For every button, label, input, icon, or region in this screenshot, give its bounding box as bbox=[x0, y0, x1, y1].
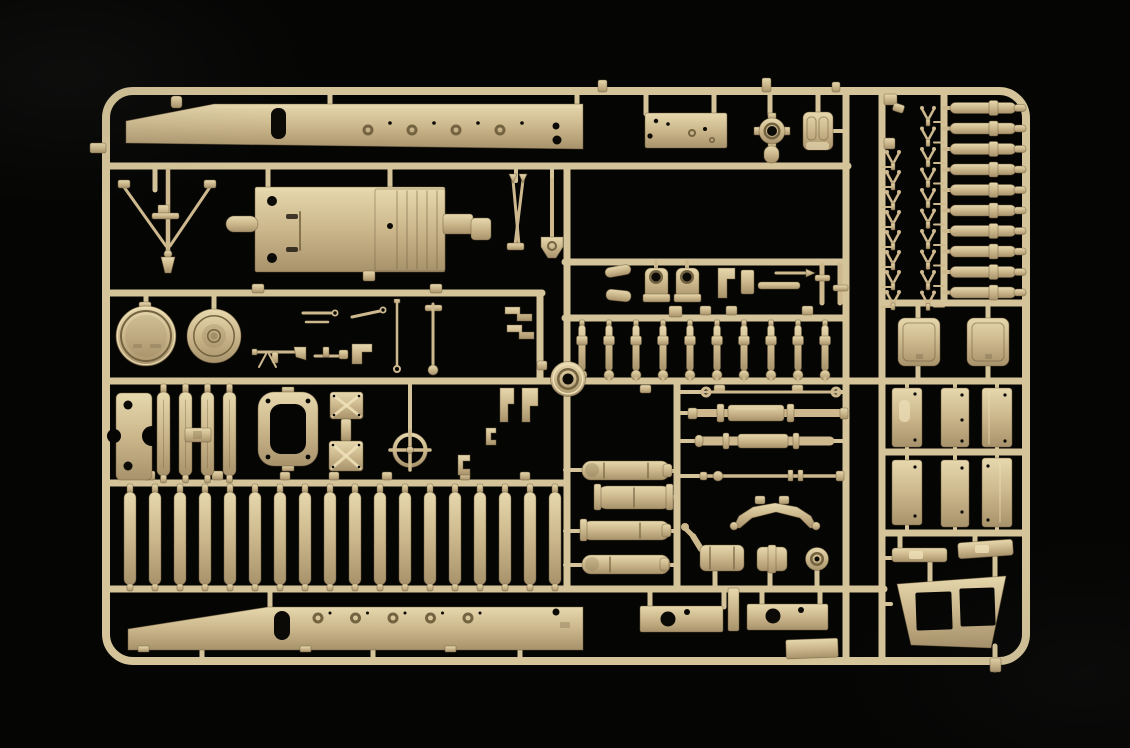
part-muffler bbox=[700, 545, 744, 571]
part-shock-column-item bbox=[944, 203, 1026, 218]
part-y-column-1 bbox=[887, 193, 893, 204]
part-spring-strips-item bbox=[157, 384, 170, 483]
part-chassis-rail-top bbox=[126, 104, 583, 149]
part-panel-rect-1 bbox=[913, 438, 916, 441]
part-leaf-spring-body bbox=[730, 496, 820, 530]
part-axle-2 bbox=[723, 433, 729, 449]
part-tank-cyl-3-body bbox=[580, 519, 671, 541]
part-panel-rect-1 bbox=[899, 400, 910, 422]
sprue-tabs bbox=[252, 284, 264, 293]
part-leaf-spring bbox=[730, 496, 820, 530]
part-hatch-1 bbox=[358, 395, 361, 398]
part-chassis-rail-bottom bbox=[138, 646, 149, 652]
sprue-tabs bbox=[892, 102, 905, 113]
part-slat-row bbox=[202, 584, 208, 591]
part-slat-row bbox=[127, 584, 133, 591]
part-ram-rods bbox=[507, 174, 527, 250]
part-plate-hole-2 bbox=[798, 607, 804, 613]
part-y-column-1 bbox=[893, 233, 899, 244]
part-end-cap-body bbox=[806, 548, 829, 571]
part-panel-rect-6 bbox=[982, 458, 1012, 527]
part-chassis-rail-bottom bbox=[560, 622, 570, 628]
part-cleaning-rod bbox=[394, 299, 400, 372]
part-tow-frame-v bbox=[152, 213, 179, 219]
part-y-column-2 bbox=[928, 232, 934, 243]
part-axle-2 bbox=[738, 434, 788, 448]
part-slat-row-item bbox=[524, 484, 536, 591]
part-panel-rect-3 bbox=[1003, 393, 1006, 396]
part-slat-row-item bbox=[499, 484, 511, 591]
part-panel-rect-2 bbox=[960, 439, 963, 442]
part-shock-column bbox=[989, 203, 998, 218]
part-strip-plate-2 bbox=[958, 539, 1014, 559]
part-shock-column bbox=[989, 142, 998, 157]
part-y-column-2-item bbox=[920, 188, 944, 208]
part-step-parts bbox=[500, 388, 514, 422]
part-chassis-rail-top bbox=[126, 96, 583, 149]
part-shaft-knobs bbox=[713, 471, 723, 481]
part-wheel-hub-top bbox=[754, 113, 790, 163]
part-hatch-2-body bbox=[329, 441, 363, 471]
part-shock-column bbox=[989, 183, 998, 198]
part-slat-row-item bbox=[249, 484, 261, 591]
part-y-column-1 bbox=[893, 173, 899, 184]
part-y-column-2 bbox=[922, 212, 928, 223]
part-tow-frame-v bbox=[118, 170, 216, 273]
part-pin-row-item bbox=[739, 320, 750, 381]
part-slat-row-item bbox=[324, 484, 336, 591]
part-chassis-rail-top bbox=[476, 121, 480, 125]
sprue-tabs bbox=[329, 472, 339, 480]
part-step-parts bbox=[500, 388, 538, 422]
part-chassis-rail-top bbox=[388, 121, 392, 125]
part-slat-row bbox=[152, 584, 158, 591]
part-tool-rods-body bbox=[303, 307, 386, 322]
part-axle-2 bbox=[695, 435, 703, 447]
part-panel-rect-4-body bbox=[892, 460, 922, 525]
sprue-tabs bbox=[382, 472, 392, 480]
part-z-links bbox=[505, 307, 534, 339]
part-pin-and-arrow bbox=[758, 269, 815, 289]
part-leaf-spring bbox=[812, 522, 820, 530]
part-shock-column bbox=[950, 287, 1016, 298]
part-tow-shackle-frame bbox=[266, 455, 271, 460]
part-slat-row-item bbox=[199, 484, 211, 591]
part-slat-row bbox=[249, 492, 261, 585]
part-shaft-knobs bbox=[836, 471, 844, 481]
part-end-bracket bbox=[107, 393, 162, 480]
part-exhaust-2-body bbox=[674, 262, 701, 302]
part-pin-row bbox=[577, 336, 588, 345]
sprue-tabs bbox=[430, 284, 442, 293]
part-y-column-2 bbox=[922, 253, 928, 264]
part-y-column-2 bbox=[926, 263, 930, 270]
part-y-column-1 bbox=[885, 170, 889, 174]
part-y-column-2-item bbox=[920, 127, 944, 147]
part-shock-column bbox=[944, 101, 1026, 301]
part-slat-row-item bbox=[474, 484, 486, 591]
part-panel-rect-6 bbox=[982, 458, 1012, 527]
part-panel-square-2-body bbox=[967, 318, 1009, 366]
part-y-column-2 bbox=[926, 242, 930, 249]
part-slat-row bbox=[324, 492, 336, 585]
part-leaf-spring bbox=[730, 522, 738, 530]
part-shock-column bbox=[1014, 207, 1026, 214]
part-t-handle-rod-body bbox=[425, 304, 442, 375]
part-slat-row-item bbox=[299, 484, 311, 591]
part-plate-hole-2 bbox=[766, 609, 781, 624]
part-end-cap bbox=[806, 548, 829, 571]
part-y-column-1 bbox=[897, 210, 901, 214]
part-y-column-2 bbox=[932, 127, 936, 131]
part-cleaning-rod bbox=[394, 366, 400, 372]
part-plate-hole-1-body bbox=[640, 606, 723, 632]
part-seat-body bbox=[803, 112, 833, 150]
part-tank-cyl-1 bbox=[663, 464, 672, 477]
part-y-column-2 bbox=[920, 106, 944, 311]
part-panel-rect-4 bbox=[892, 460, 922, 525]
part-gun-mount-plate bbox=[267, 196, 277, 206]
part-pin-row-item bbox=[820, 320, 831, 381]
part-tow-shackle-frame bbox=[306, 399, 311, 404]
part-chassis-rail-bottom bbox=[404, 612, 407, 615]
part-shock-column bbox=[1014, 228, 1026, 235]
part-drum-large bbox=[133, 344, 142, 348]
part-y-column-2 bbox=[928, 253, 934, 264]
part-hub-ring-center bbox=[551, 362, 586, 397]
part-tow-shackle-frame-body bbox=[258, 387, 318, 471]
part-tow-shackle-frame bbox=[306, 455, 311, 460]
part-shaft-knobs bbox=[788, 470, 793, 481]
part-gun-mount-plate bbox=[375, 189, 445, 271]
sprue-tabs bbox=[802, 306, 813, 315]
part-y-column-2 bbox=[932, 147, 936, 151]
part-panel-rect-6-body bbox=[982, 458, 1012, 527]
part-pin-and-arrow bbox=[806, 269, 815, 277]
part-leaf-spring bbox=[733, 503, 817, 528]
part-mudflap-trapezoid bbox=[897, 576, 1006, 648]
part-plate-hole-1 bbox=[661, 612, 676, 627]
part-detail-plate-top bbox=[654, 119, 658, 123]
part-shock-column-item bbox=[944, 285, 1026, 300]
part-slat-row bbox=[199, 492, 211, 585]
part-tow-frame-v-body bbox=[118, 170, 216, 273]
part-shock-column bbox=[1014, 269, 1026, 276]
sprue-root bbox=[90, 78, 1026, 672]
part-bone-pair bbox=[604, 264, 631, 302]
part-y-column-2 bbox=[920, 291, 924, 295]
part-tow-frame-v bbox=[161, 257, 175, 273]
part-seat bbox=[806, 142, 829, 150]
part-shock-column bbox=[1014, 289, 1026, 296]
part-shovel bbox=[541, 237, 563, 258]
part-chassis-rail-bottom bbox=[300, 646, 311, 652]
part-y-column-1 bbox=[885, 210, 889, 214]
part-step-parts-body bbox=[500, 388, 538, 422]
part-y-column-1 bbox=[885, 230, 889, 234]
part-slat-row bbox=[227, 584, 233, 591]
part-y-column-1 bbox=[893, 193, 899, 204]
part-axle-1 bbox=[840, 408, 848, 419]
part-tank-cyl-4 bbox=[660, 558, 669, 571]
part-cyl-small bbox=[757, 545, 787, 573]
part-pin-row bbox=[822, 325, 829, 371]
part-shock-column-item bbox=[944, 265, 1026, 280]
part-pin-row bbox=[739, 336, 750, 345]
sprue-tabs bbox=[598, 80, 607, 92]
part-pin-row-item bbox=[766, 320, 777, 381]
part-y-column-1 bbox=[897, 290, 901, 294]
part-y-column-2 bbox=[928, 191, 934, 202]
part-drum-small bbox=[211, 333, 218, 340]
part-axle-1 bbox=[688, 408, 697, 419]
part-chassis-rail-top bbox=[553, 123, 560, 130]
part-tank-cyl-3 bbox=[582, 521, 670, 540]
part-tool-rods bbox=[380, 307, 385, 312]
part-axle-1 bbox=[787, 404, 794, 422]
part-y-column-2 bbox=[926, 181, 930, 188]
part-y-column-1 bbox=[897, 170, 901, 174]
part-slat-row bbox=[377, 584, 383, 591]
part-slat-row bbox=[399, 492, 411, 585]
part-detail-plate-top bbox=[703, 127, 707, 131]
part-shovel bbox=[541, 180, 563, 258]
part-end-cap bbox=[815, 557, 820, 562]
part-hatch-2 bbox=[332, 444, 335, 447]
part-strip-connector bbox=[193, 431, 202, 439]
sprue-tabs bbox=[726, 306, 737, 315]
part-slat-row bbox=[349, 492, 361, 585]
part-y-column-1 bbox=[893, 153, 899, 164]
part-hatch-1 bbox=[333, 395, 336, 398]
part-slat-row bbox=[449, 492, 461, 585]
part-y-column-2 bbox=[920, 168, 924, 172]
part-y-column-2 bbox=[926, 201, 930, 208]
part-panel-square-1 bbox=[898, 318, 940, 366]
part-wheel-hub-top-body bbox=[754, 113, 790, 163]
part-panel-rect-2-body bbox=[941, 388, 969, 447]
part-shock-column bbox=[989, 244, 998, 259]
part-y-column-2 bbox=[932, 250, 936, 254]
part-detail-plate-top-body bbox=[645, 113, 727, 148]
part-step-parts bbox=[522, 388, 538, 422]
part-end-bracket bbox=[107, 429, 121, 443]
part-slat-row-item bbox=[224, 484, 236, 591]
part-slat-row-item bbox=[399, 484, 411, 591]
part-shock-column-item bbox=[944, 101, 1026, 116]
part-y-column-2-item bbox=[920, 106, 944, 126]
part-s-hooks bbox=[486, 428, 496, 445]
part-slat-row-item bbox=[424, 484, 436, 591]
part-y-column-1 bbox=[885, 290, 889, 294]
part-chassis-rail-bottom bbox=[441, 612, 444, 615]
part-exhaust-1 bbox=[643, 262, 670, 302]
part-bone-pair-body bbox=[604, 264, 631, 302]
part-slat-row bbox=[327, 584, 333, 591]
part-s-hooks bbox=[458, 428, 496, 475]
part-axle-2 bbox=[793, 433, 799, 449]
part-y-column-1 bbox=[897, 190, 901, 194]
part-panel-rect-2 bbox=[960, 418, 963, 421]
part-y-column-2 bbox=[926, 119, 930, 126]
sprue-tabs bbox=[700, 306, 711, 315]
part-shock-column-item bbox=[944, 142, 1026, 157]
part-drum-small-body bbox=[187, 309, 241, 363]
part-y-column-2 bbox=[922, 150, 928, 161]
part-drum-large bbox=[125, 315, 167, 357]
part-plate-hole-1 bbox=[640, 606, 723, 632]
part-drum-large bbox=[116, 302, 176, 366]
part-y-column-1 bbox=[893, 253, 899, 264]
part-y-column-1 bbox=[893, 213, 899, 224]
part-pin-row-item bbox=[712, 320, 723, 381]
part-pin-row bbox=[793, 336, 804, 345]
part-panel-rect-5-body bbox=[941, 460, 969, 527]
part-shock-column bbox=[950, 205, 1016, 216]
part-tank-cyl-3 bbox=[580, 519, 671, 541]
part-shock-column bbox=[1014, 248, 1026, 255]
part-pin-row bbox=[741, 325, 748, 371]
part-shock-column bbox=[1014, 125, 1026, 132]
part-panel-rect-5 bbox=[960, 466, 963, 469]
part-gun-mount-plate bbox=[443, 214, 473, 234]
part-chassis-rail-top bbox=[432, 121, 436, 125]
part-tank-cyl-4 bbox=[585, 557, 599, 571]
sprue-tabs bbox=[832, 82, 840, 92]
part-wheel-hub-top bbox=[767, 126, 777, 136]
part-slat-row bbox=[174, 492, 186, 585]
part-tank-cyl-3 bbox=[580, 519, 587, 541]
part-y-column-1 bbox=[887, 213, 893, 224]
part-y-column-2-item bbox=[920, 147, 944, 167]
part-cyl-small bbox=[768, 545, 776, 573]
part-slat-row-item bbox=[274, 484, 286, 591]
part-pin-row bbox=[820, 336, 831, 345]
part-z-links-body bbox=[505, 307, 534, 339]
part-chassis-rail-bottom bbox=[445, 646, 456, 652]
part-pin-row bbox=[633, 325, 640, 371]
part-slat-row-item bbox=[374, 484, 386, 591]
part-slat-row bbox=[552, 584, 558, 591]
part-y-column-1 bbox=[885, 270, 889, 274]
part-plate-hole-1 bbox=[684, 609, 690, 615]
part-pin-row-item bbox=[658, 320, 669, 381]
part-slat-row bbox=[424, 492, 436, 585]
part-shock-column bbox=[1014, 187, 1026, 194]
part-axle-1 bbox=[728, 405, 784, 421]
part-exhaust-1 bbox=[643, 294, 670, 302]
sprue-tabs bbox=[90, 143, 106, 153]
part-panel-rect-2 bbox=[941, 388, 969, 447]
part-bone-pair bbox=[605, 289, 631, 303]
part-y-column-1 bbox=[885, 150, 889, 154]
part-tank-cyl-1-body bbox=[582, 461, 672, 480]
part-shock-column bbox=[989, 265, 998, 280]
part-step-brackets-body bbox=[718, 268, 754, 298]
part-slat-row bbox=[374, 492, 386, 585]
part-chassis-rail-top bbox=[520, 121, 524, 125]
part-y-column-2-item bbox=[920, 209, 944, 229]
part-strip-connector bbox=[185, 428, 211, 442]
part-y-column-2 bbox=[932, 270, 936, 274]
part-gun-mount-plate bbox=[471, 218, 491, 240]
part-pin-and-arrow-body bbox=[758, 269, 815, 289]
part-y-column-2 bbox=[920, 229, 924, 233]
part-y-column-2-item bbox=[920, 168, 944, 188]
part-t-brackets bbox=[815, 275, 830, 281]
part-shock-column bbox=[1014, 105, 1026, 112]
part-panel-rect-1-body bbox=[892, 388, 922, 447]
part-muffler bbox=[681, 523, 689, 531]
part-y-column-2 bbox=[928, 273, 934, 284]
part-shaft-knobs bbox=[700, 472, 707, 480]
part-axle-2-body bbox=[695, 433, 830, 449]
part-pin-row bbox=[606, 325, 613, 371]
sprue-photo bbox=[0, 0, 1130, 748]
part-step-brackets bbox=[718, 268, 735, 298]
part-gun-mount-plate bbox=[387, 223, 393, 229]
part-shock-column bbox=[1014, 146, 1026, 153]
part-slat-row bbox=[527, 584, 533, 591]
part-sight-ring-body bbox=[390, 430, 430, 470]
part-shock-column bbox=[989, 121, 998, 136]
part-hatch-2 bbox=[332, 466, 335, 469]
part-mg-gun bbox=[259, 354, 266, 367]
part-y-column-2 bbox=[922, 130, 928, 141]
part-end-bracket bbox=[124, 401, 133, 410]
part-y-column-2 bbox=[928, 150, 934, 161]
part-panel-rect-5 bbox=[960, 510, 963, 513]
part-y-column-2 bbox=[922, 232, 928, 243]
part-axle-2 bbox=[695, 433, 830, 449]
part-drum-small bbox=[187, 309, 241, 363]
part-shock-column-item bbox=[944, 121, 1026, 136]
part-pin-row bbox=[714, 325, 721, 371]
part-plate-hole-1 bbox=[640, 606, 723, 632]
part-pin-and-arrow bbox=[758, 282, 800, 289]
part-slat-row-item bbox=[449, 484, 461, 591]
part-shaft-knobs bbox=[798, 470, 803, 481]
part-pin-row bbox=[687, 325, 694, 371]
part-plate-stem bbox=[728, 588, 739, 631]
part-panel-rect-1 bbox=[913, 392, 916, 395]
part-sight-ring bbox=[407, 447, 414, 454]
part-panel-rect-5 bbox=[941, 460, 969, 527]
part-shock-column bbox=[1014, 166, 1026, 173]
part-y-column-2 bbox=[932, 291, 936, 295]
part-y-column-1 bbox=[887, 153, 893, 164]
part-exhaust-1 bbox=[652, 273, 661, 282]
part-tank-cyl-2 bbox=[594, 484, 601, 510]
part-detail-plate-top bbox=[647, 133, 652, 138]
part-slat-row-item bbox=[174, 484, 186, 591]
part-z-links bbox=[505, 307, 532, 321]
part-pin-row-item bbox=[631, 320, 642, 381]
part-tow-shackle-frame bbox=[266, 399, 271, 404]
part-strip-plate-2-body bbox=[958, 539, 1014, 559]
part-y-column-2 bbox=[928, 171, 934, 182]
sprue-tabs bbox=[762, 78, 771, 92]
part-y-column-2 bbox=[920, 106, 924, 110]
part-panel-rect-1 bbox=[892, 388, 922, 447]
part-chassis-rail-bottom bbox=[366, 612, 369, 615]
part-panel-rect-5 bbox=[941, 460, 969, 527]
part-pin-row-item bbox=[793, 320, 804, 381]
part-step-brackets bbox=[718, 268, 754, 298]
part-shock-column bbox=[950, 246, 1016, 257]
part-strip-plate-2 bbox=[975, 545, 989, 553]
part-y-column-2-item bbox=[920, 270, 944, 290]
